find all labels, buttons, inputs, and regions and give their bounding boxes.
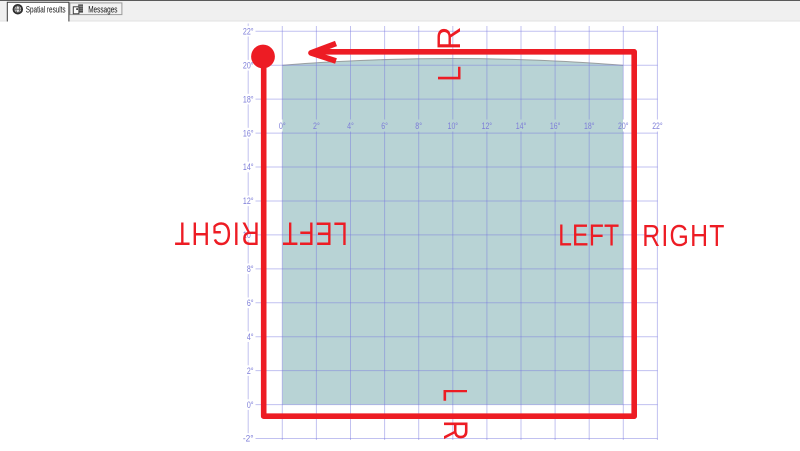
svg-text:RIGHT: RIGHT	[642, 218, 726, 252]
svg-text:Messages: Messages	[88, 5, 117, 16]
svg-text:8°: 8°	[415, 121, 422, 131]
svg-text:2°: 2°	[247, 366, 254, 376]
svg-text:Spatial results: Spatial results	[26, 5, 66, 16]
svg-text:14°: 14°	[243, 162, 254, 172]
svg-text:L: L	[432, 66, 468, 82]
svg-text:14°: 14°	[516, 121, 527, 131]
svg-text:4°: 4°	[347, 121, 354, 131]
svg-text:4°: 4°	[247, 332, 254, 342]
svg-text:0°: 0°	[247, 400, 254, 410]
svg-text:16°: 16°	[550, 121, 561, 131]
svg-text:22°: 22°	[243, 26, 254, 36]
svg-text:22°: 22°	[652, 121, 663, 131]
svg-text:L: L	[435, 388, 473, 402]
svg-text:6°: 6°	[247, 298, 254, 308]
svg-text:10°: 10°	[448, 121, 459, 131]
svg-text:R: R	[431, 27, 467, 50]
svg-text:6°: 6°	[381, 121, 388, 131]
svg-text:16°: 16°	[243, 128, 254, 138]
svg-text:20°: 20°	[243, 60, 254, 70]
svg-text:LEFT: LEFT	[558, 218, 619, 252]
svg-text:-2°: -2°	[243, 434, 254, 444]
svg-text:18°: 18°	[243, 94, 254, 104]
svg-text:20°: 20°	[618, 121, 629, 131]
svg-text:LEFT: LEFT	[281, 215, 347, 250]
svg-text:12°: 12°	[482, 121, 493, 131]
svg-text:0°: 0°	[279, 121, 286, 131]
svg-text:12°: 12°	[243, 196, 254, 206]
svg-text:R: R	[436, 420, 474, 440]
svg-text:8°: 8°	[247, 264, 254, 274]
svg-text:18°: 18°	[584, 121, 595, 131]
svg-text:RIGHT: RIGHT	[173, 215, 260, 250]
svg-text:2°: 2°	[313, 121, 320, 131]
